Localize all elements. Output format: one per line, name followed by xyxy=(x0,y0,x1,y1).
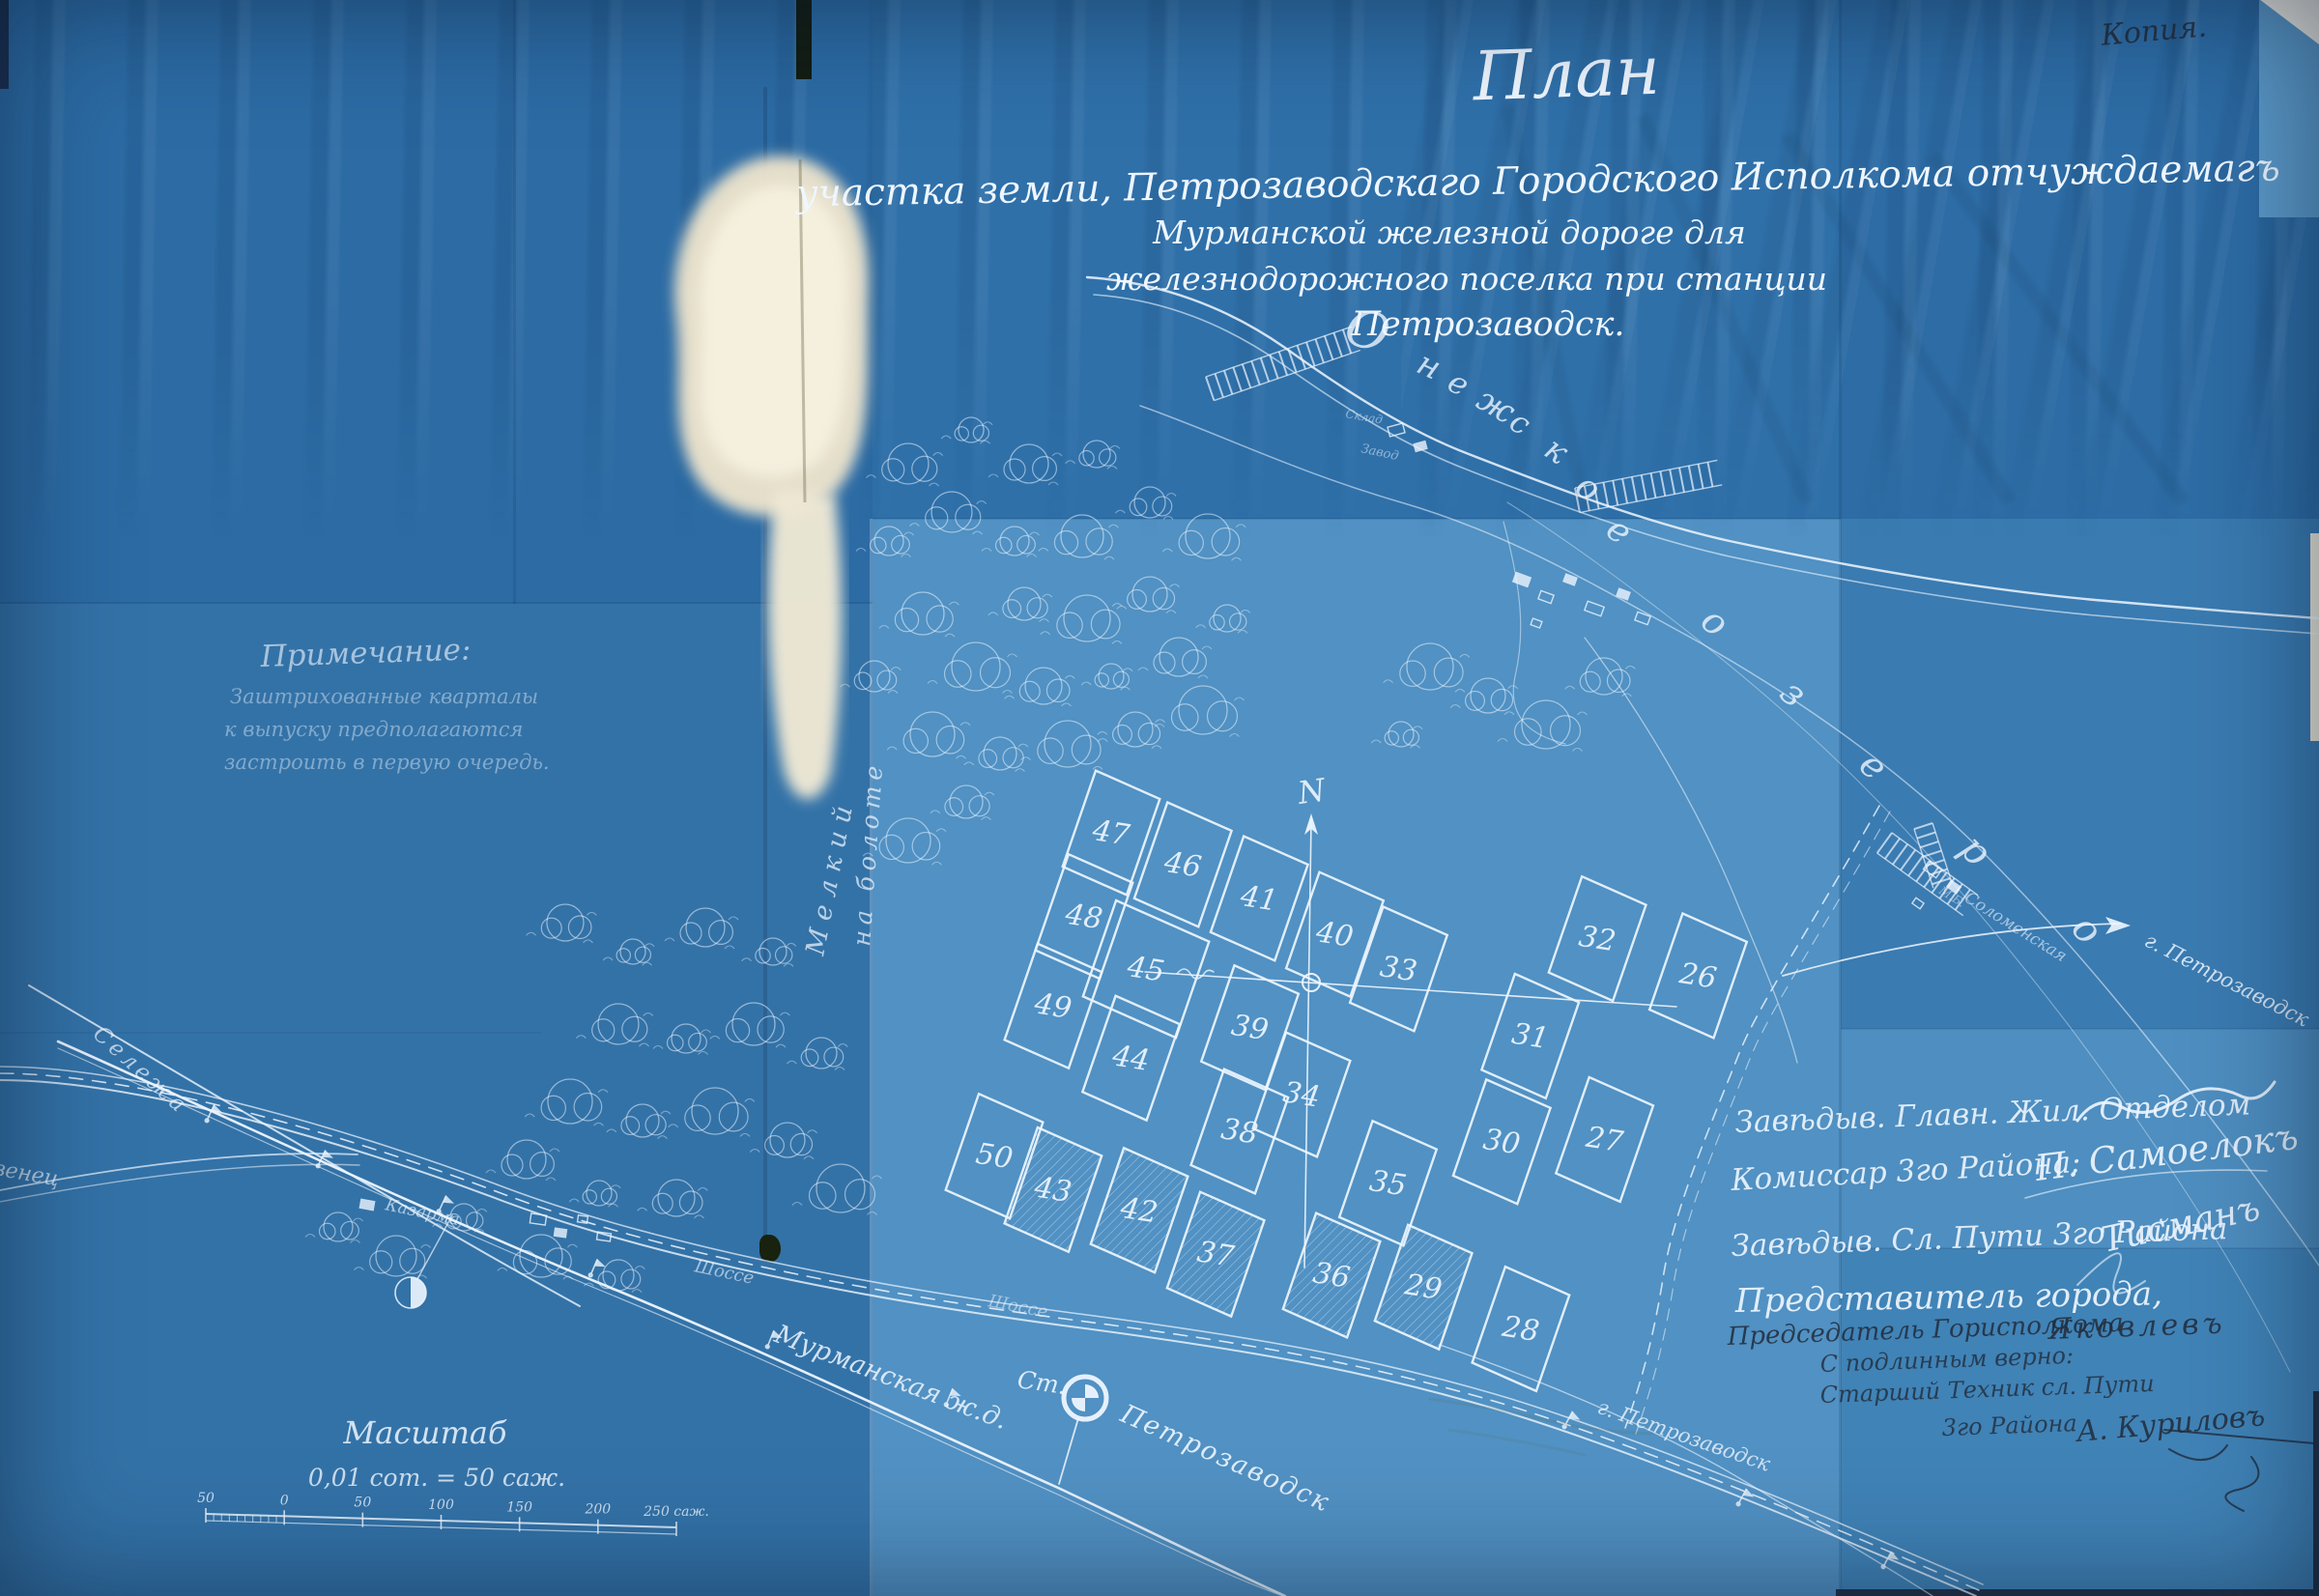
scan-vignette xyxy=(0,0,2319,1596)
blueprint-map-page: 4746414033322648453934313027494438355043… xyxy=(0,0,2319,1596)
